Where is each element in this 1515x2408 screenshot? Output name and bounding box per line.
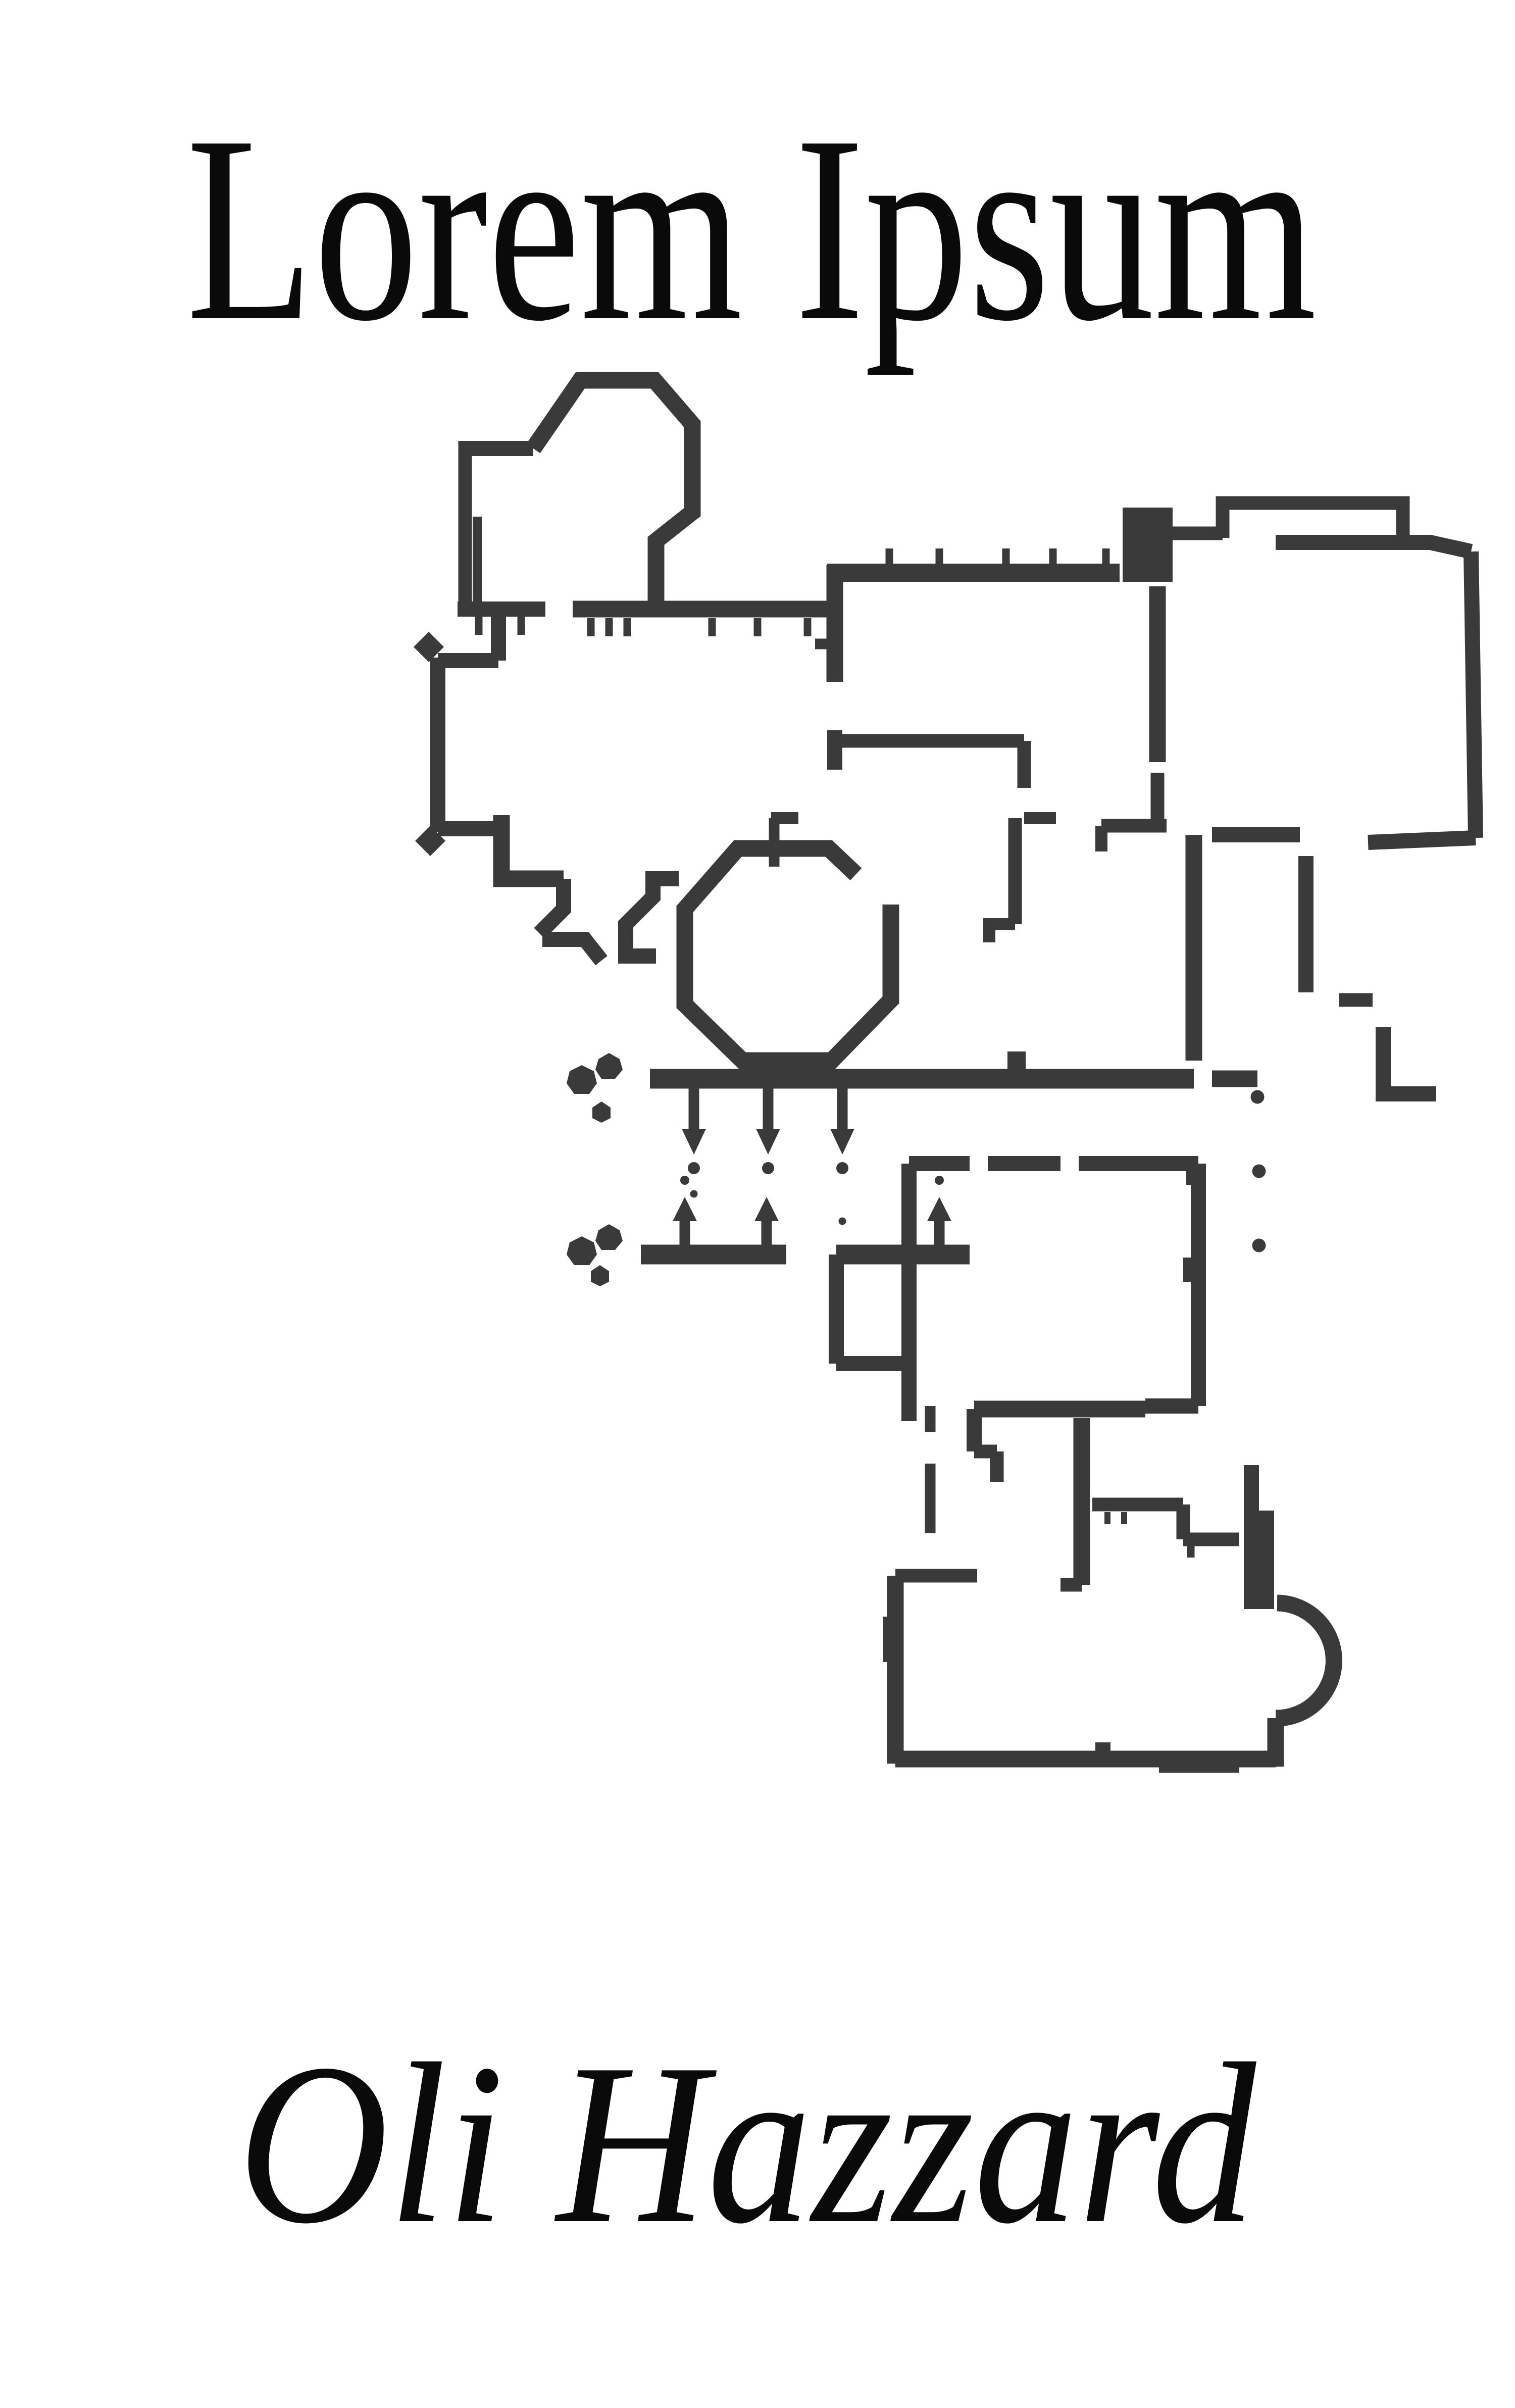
floor-plan-colonnade-row2: [641, 1221, 970, 1255]
cover-canvas: Lorem Ipsum: [0, 0, 1515, 2407]
floor-plan-octagon-room: [685, 848, 891, 1061]
floor-plan-middle-cluster: [836, 1164, 1198, 1533]
book-author: Oli Hazzard: [238, 2016, 1259, 2271]
floor-plan-solids: [414, 508, 1274, 1773]
floor-plan-colonnade-row1: [650, 1079, 1257, 1129]
floor-plan-central-block: [771, 548, 1167, 1079]
floor-plan-left-wing: [438, 380, 838, 961]
floor-plan-illustration: [414, 380, 1476, 1773]
book-cover: Lorem Ipsum: [0, 0, 1515, 2407]
floor-plan-right-block: [1123, 503, 1476, 1094]
book-title: Lorem Ipsum: [186, 81, 1317, 377]
